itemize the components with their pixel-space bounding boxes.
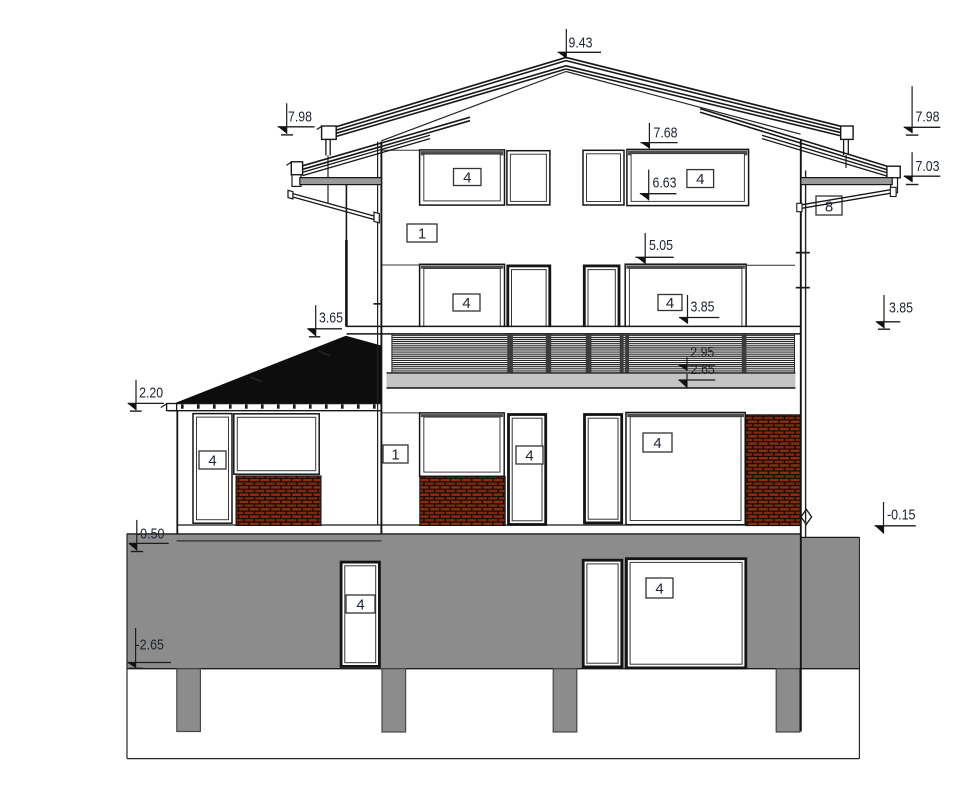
svg-text:4: 4 xyxy=(666,295,674,312)
svg-text:7.68: 7.68 xyxy=(654,126,678,142)
svg-text:8: 8 xyxy=(825,198,833,215)
svg-text:4: 4 xyxy=(356,596,364,613)
svg-text:4: 4 xyxy=(208,452,216,469)
svg-text:4: 4 xyxy=(655,580,663,597)
svg-text:3.85: 3.85 xyxy=(691,300,715,316)
svg-text:4: 4 xyxy=(463,169,471,186)
svg-text:5.05: 5.05 xyxy=(649,238,673,254)
svg-text:1: 1 xyxy=(391,446,399,463)
svg-text:7.03: 7.03 xyxy=(916,159,940,175)
svg-text:4: 4 xyxy=(696,171,704,188)
svg-text:4: 4 xyxy=(525,447,533,464)
svg-text:3.65: 3.65 xyxy=(319,311,343,327)
svg-text:1: 1 xyxy=(418,225,426,242)
svg-text:-0.50: -0.50 xyxy=(136,527,165,543)
svg-text:4: 4 xyxy=(462,295,470,312)
svg-text:7.98: 7.98 xyxy=(916,110,940,126)
svg-text:-2.65: -2.65 xyxy=(136,638,165,654)
svg-text:7.98: 7.98 xyxy=(288,109,312,125)
svg-text:4: 4 xyxy=(653,435,661,452)
svg-text:9.43: 9.43 xyxy=(569,36,593,52)
svg-text:2.20: 2.20 xyxy=(139,386,163,402)
svg-text:3.85: 3.85 xyxy=(889,300,913,316)
svg-text:-0.15: -0.15 xyxy=(887,507,916,523)
svg-text:6.63: 6.63 xyxy=(653,175,677,191)
